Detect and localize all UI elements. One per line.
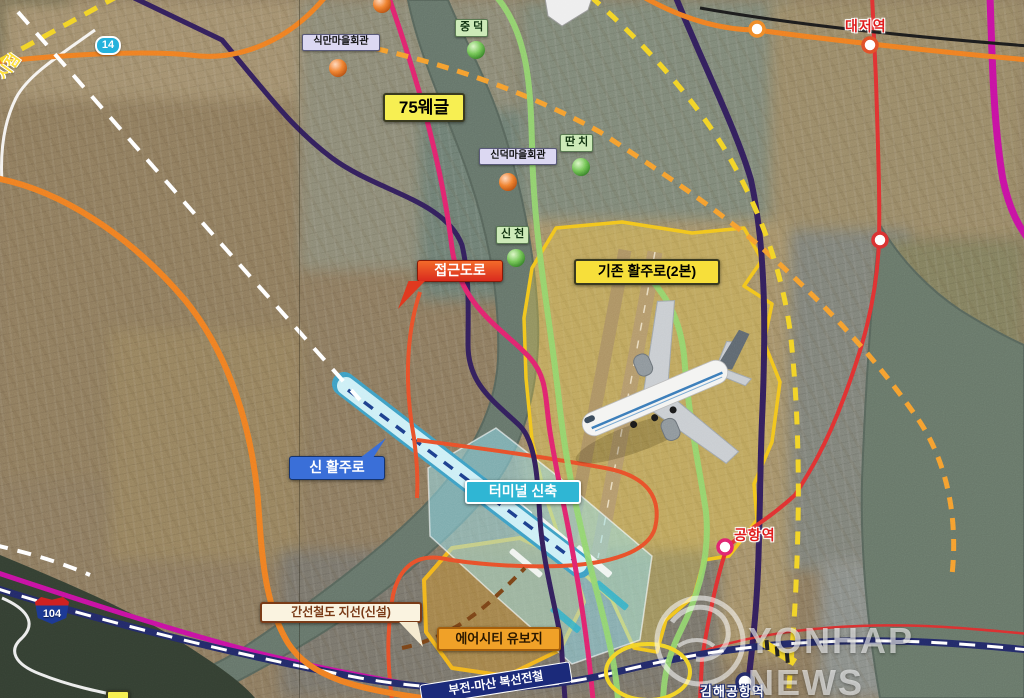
label-ttanchi: 딴 치: [560, 134, 593, 152]
label-new-terminal: 터미널 신축: [465, 480, 581, 504]
label-new-runway: 신 활주로: [289, 456, 385, 480]
label-sindeok-hall: 신덕마을회관: [479, 148, 557, 165]
station-daejeo: 대저역: [845, 18, 887, 36]
magenta-route-topright: [990, 0, 1024, 240]
white-marker-top: [545, 0, 592, 26]
yonhap-watermark-text: YONHAP NEWS: [748, 620, 1024, 698]
satellite-plan-map: 식만마을회관 중 덕 신덕마을회관 딴 치 신 천 14 104 75웨글 접근…: [0, 0, 1024, 698]
label-jungdeok: 중 덕: [455, 19, 488, 37]
route-75-badge: 75웨글: [383, 93, 465, 122]
label-aircity-reserve: 에어시티 유보지: [437, 627, 561, 651]
label-rail-branch: 간선철도 지선(신설): [260, 602, 422, 623]
label-access-road: 접근도로: [417, 260, 503, 282]
label-sincheon: 신 천: [496, 226, 529, 244]
route-14-shield: 14: [95, 36, 121, 55]
map-overlay-graphics: [0, 0, 1024, 698]
label-existing-runway: 기존 활주로(2본): [574, 259, 720, 285]
station-airport: 공항역: [734, 527, 776, 545]
map-fold-crease: [299, 0, 300, 698]
partial-route-badge: [106, 690, 130, 698]
label-sikman-hall: 식만마을회관: [302, 34, 380, 51]
